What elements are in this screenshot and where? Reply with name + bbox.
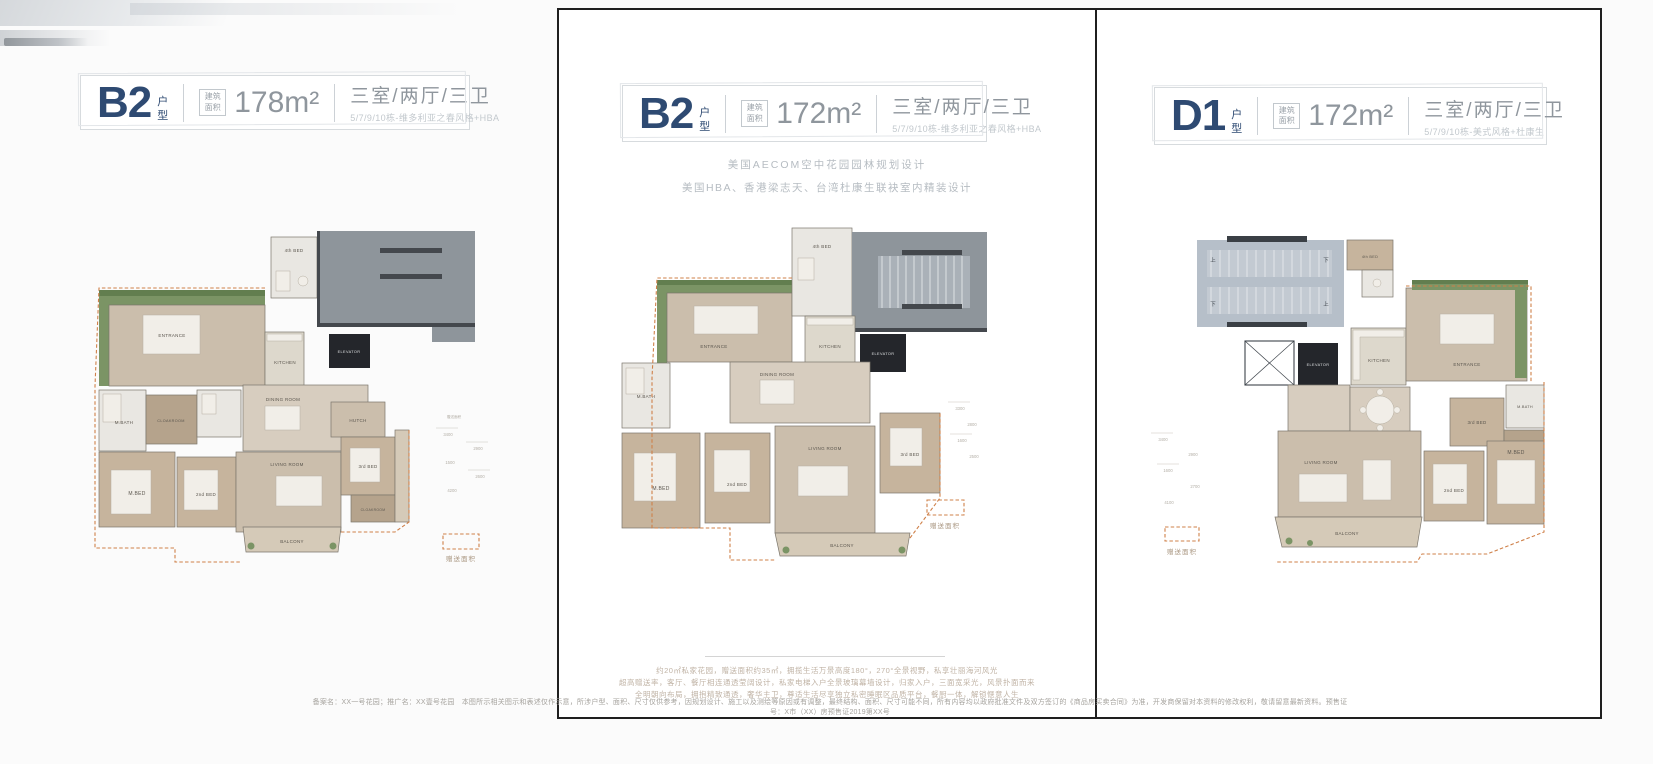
area-value: 172m² — [1308, 99, 1393, 133]
chair — [1377, 425, 1383, 431]
fixture — [298, 276, 308, 286]
marketing-line-1: 约20㎡私家花园，赠送面积约35㎡，拥揽生活万景高度180°，270°全景视野，… — [559, 665, 1095, 677]
label-cloakroom2: CLOAKROOM — [361, 508, 386, 512]
label-stair-up: 上 — [1210, 256, 1216, 264]
sofa — [1299, 474, 1347, 502]
design-credits: 美国AECOM空中花园园林规划设计 美国HBA、香港梁志天、台湾杜康生联袂室内精… — [559, 157, 1095, 195]
header-b2-178: B2 户型 建筑面积 178m² 三室/两厅/三卫 5/7/9/10栋-维多利亚… — [80, 75, 470, 130]
label-fourth-bed: 4th BED — [285, 248, 304, 253]
label-entrance: ENTRANCE — [1453, 362, 1480, 367]
label-fourth-bed: 4th BED — [813, 244, 832, 249]
room-spec: 三室/两厅/三卫 — [1424, 95, 1565, 122]
area-label: 建筑面积 — [741, 100, 768, 127]
sofa — [798, 466, 848, 496]
label-cloakroom: CLOAKROOM — [157, 419, 184, 423]
label-entrance: ENTRANCE — [158, 333, 185, 338]
panel-b2-178: B2 户型 建筑面积 178m² 三室/两厅/三卫 5/7/9/10栋-维多利亚… — [0, 0, 557, 764]
bed — [1497, 460, 1535, 504]
svg-text:1600: 1600 — [957, 438, 967, 443]
label-mbed: M.BED — [1507, 450, 1524, 456]
fixture — [202, 394, 216, 414]
room-spec-sub: 5/7/9/10栋-维多利亚之春风格+HBA — [350, 111, 499, 124]
svg-text:4200: 4200 — [447, 488, 457, 493]
elevator-shaft — [1245, 341, 1294, 385]
label-third-bed: 3rd BED — [900, 452, 920, 457]
dining-table — [760, 380, 794, 404]
plan-code-suffix: 户型 — [699, 107, 710, 135]
label-second-bed: 2nd BED — [196, 492, 217, 497]
header-divider — [183, 84, 184, 122]
svg-text:3400: 3400 — [443, 432, 453, 437]
footer-divider — [705, 656, 945, 657]
counter — [807, 318, 853, 325]
svg-text:2900: 2900 — [1188, 452, 1198, 457]
label-second-bed: 2nd BED — [1444, 488, 1465, 493]
label-entrance: ENTRANCE — [700, 344, 727, 349]
dimension-annotations: 3400 2900 1600 2700 4100 — [1151, 433, 1200, 505]
label-kitchen: KITCHEN — [274, 360, 296, 365]
plan-code: D1 — [1171, 94, 1225, 138]
label-living: LIVING ROOM — [270, 462, 303, 467]
entrance-table — [1440, 314, 1494, 344]
area-value: 172m² — [776, 97, 861, 131]
dimension-annotations: 3300 2800 1600 2500 — [948, 402, 979, 459]
chair — [1377, 389, 1383, 395]
plant — [248, 543, 255, 550]
room-spec: 三室/两厅/三卫 — [892, 92, 1041, 119]
room-spec-sub: 5/7/9/10栋-美式风格+杜康生 — [1424, 125, 1565, 138]
header-divider — [1408, 97, 1409, 135]
floorplan-d1-172: 上 下 下 上 ELEVATOR 4th BED KITCHEN — [1107, 202, 1547, 577]
label-hutch: HUTCH — [349, 418, 366, 423]
legal-disclaimer: 备案名：XX一号花园；推广名：XX壹号花园 本图所示相关图示和表述仅作示意，所涉… — [310, 697, 1350, 717]
label-kitchen: KITCHEN — [1368, 358, 1390, 363]
svg-text:赠送面积: 赠送面积 — [447, 414, 462, 419]
chair — [1394, 407, 1400, 413]
bed — [1433, 464, 1467, 504]
svg-text:1500: 1500 — [445, 460, 455, 465]
header-divider — [876, 95, 877, 133]
bed — [184, 470, 218, 510]
credit-line-1: 美国AECOM空中花园园林规划设计 — [559, 157, 1095, 172]
counter — [267, 334, 302, 341]
label-balcony: BALCONY — [830, 543, 854, 548]
label-dining: DINING ROOM — [760, 372, 794, 377]
gift-area-legend: 赠送面积 — [927, 500, 964, 530]
dining-table — [1366, 396, 1394, 424]
roof-block — [317, 231, 475, 342]
svg-text:1600: 1600 — [1163, 468, 1173, 473]
plan-code: B2 — [639, 92, 693, 136]
stair-block — [852, 232, 987, 332]
label-third-bed: 3rd BED — [358, 464, 378, 469]
label-stair-up: 上 — [1323, 300, 1329, 308]
sofa — [276, 476, 322, 506]
label-living: LIVING ROOM — [808, 446, 841, 451]
svg-text:2500: 2500 — [969, 454, 979, 459]
svg-text:赠送面积: 赠送面积 — [446, 554, 476, 563]
plant — [330, 543, 337, 550]
credit-line-2: 美国HBA、香港梁志天、台湾杜康生联袂室内精装设计 — [559, 180, 1095, 195]
dining-table — [265, 406, 300, 430]
label-mbed: M.BED — [652, 486, 669, 492]
svg-text:2700: 2700 — [1190, 484, 1200, 489]
header-d1-172: D1 户型 建筑面积 172m² 三室/两厅/三卫 5/7/9/10栋-美式风格… — [1154, 87, 1547, 145]
entrance-table — [694, 306, 758, 334]
label-mbath: M.BATH — [1517, 405, 1533, 409]
floorplan-b2-172: ENTRANCE 4th BED KITCHEN ELEVATOR — [610, 198, 1000, 573]
label-elevator: ELEVATOR — [338, 350, 361, 354]
panel-d1-172: D1 户型 建筑面积 172m² 三室/两厅/三卫 5/7/9/10栋-美式风格… — [1095, 8, 1602, 719]
sofa — [1363, 460, 1391, 500]
room-spec-sub: 5/7/9/10栋-维多利亚之春风格+HBA — [892, 122, 1041, 135]
label-third-bed: 3rd BED — [1467, 420, 1487, 425]
plan-code: B2 — [97, 81, 151, 125]
plant — [783, 547, 790, 554]
bathtub — [626, 368, 644, 394]
header-divider — [725, 95, 726, 133]
label-balcony: BALCONY — [280, 539, 304, 544]
bed — [890, 428, 922, 466]
hallway — [1288, 385, 1350, 431]
svg-text:2900: 2900 — [473, 446, 483, 451]
label-kitchen: KITCHEN — [819, 344, 841, 349]
fixture — [798, 258, 814, 280]
svg-text:赠送面积: 赠送面积 — [930, 521, 960, 530]
fixture — [1373, 279, 1381, 287]
floorplan-b2-178: ENTRANCE 4th BED ELEVATOR KITCHEN — [80, 196, 520, 571]
svg-text:3300: 3300 — [955, 406, 965, 411]
label-second-bed: 2nd BED — [727, 482, 748, 487]
area-label: 建筑面积 — [1273, 103, 1300, 130]
area-label: 建筑面积 — [199, 89, 226, 116]
header-divider — [334, 84, 335, 122]
gift-area-legend: 赠送面积 — [443, 534, 479, 563]
svg-text:2800: 2800 — [967, 422, 977, 427]
stair-block: 上 下 下 上 — [1197, 236, 1344, 327]
svg-text:2600: 2600 — [475, 474, 485, 479]
label-living: LIVING ROOM — [1304, 460, 1337, 465]
svg-text:赠送面积: 赠送面积 — [1167, 547, 1197, 556]
plant — [1286, 538, 1293, 545]
brochure-page: B2 户型 建筑面积 178m² 三室/两厅/三卫 5/7/9/10栋-维多利亚… — [0, 0, 1653, 764]
room-spec: 三室/两厅/三卫 — [350, 81, 499, 108]
label-dining: DINING ROOM — [266, 397, 300, 402]
svg-text:4100: 4100 — [1164, 500, 1174, 505]
label-elevator: ELEVATOR — [1307, 363, 1330, 367]
label-stair-down: 下 — [1210, 301, 1216, 308]
plan-code-suffix: 户型 — [157, 96, 168, 124]
header-b2-172: B2 户型 建筑面积 172m² 三室/两厅/三卫 5/7/9/10栋-维多利亚… — [622, 85, 987, 142]
label-mbath: M.BATH — [115, 420, 133, 425]
plant — [899, 547, 906, 554]
fixture — [276, 271, 290, 291]
dimension-annotations: 赠送面积 3400 2900 1500 2600 4200 — [436, 414, 490, 493]
label-stair-down: 下 — [1323, 257, 1329, 264]
bathtub — [103, 394, 121, 422]
svg-text:3400: 3400 — [1158, 437, 1168, 442]
label-balcony: BALCONY — [1335, 531, 1359, 536]
side-terrace — [395, 430, 409, 522]
chair — [1360, 407, 1366, 413]
plant — [1307, 540, 1313, 546]
marketing-line-2: 超高赠送率，客厅、餐厅相连通透莹阔设计，私家电梯入户全景玻璃幕墙设计，归家入户，… — [559, 677, 1095, 689]
area-value: 178m² — [234, 86, 319, 120]
label-elevator: ELEVATOR — [872, 352, 895, 356]
bed — [634, 453, 676, 501]
room-dining — [730, 362, 870, 423]
plan-code-suffix: 户型 — [1231, 109, 1242, 137]
header-divider — [1257, 97, 1258, 135]
label-mbed: M.BED — [128, 491, 145, 497]
gift-area-legend: 赠送面积 — [1165, 527, 1199, 556]
panel-b2-172: B2 户型 建筑面积 172m² 三室/两厅/三卫 5/7/9/10栋-维多利亚… — [557, 8, 1097, 719]
label-fourth-bed: 4th BED — [1362, 255, 1378, 259]
